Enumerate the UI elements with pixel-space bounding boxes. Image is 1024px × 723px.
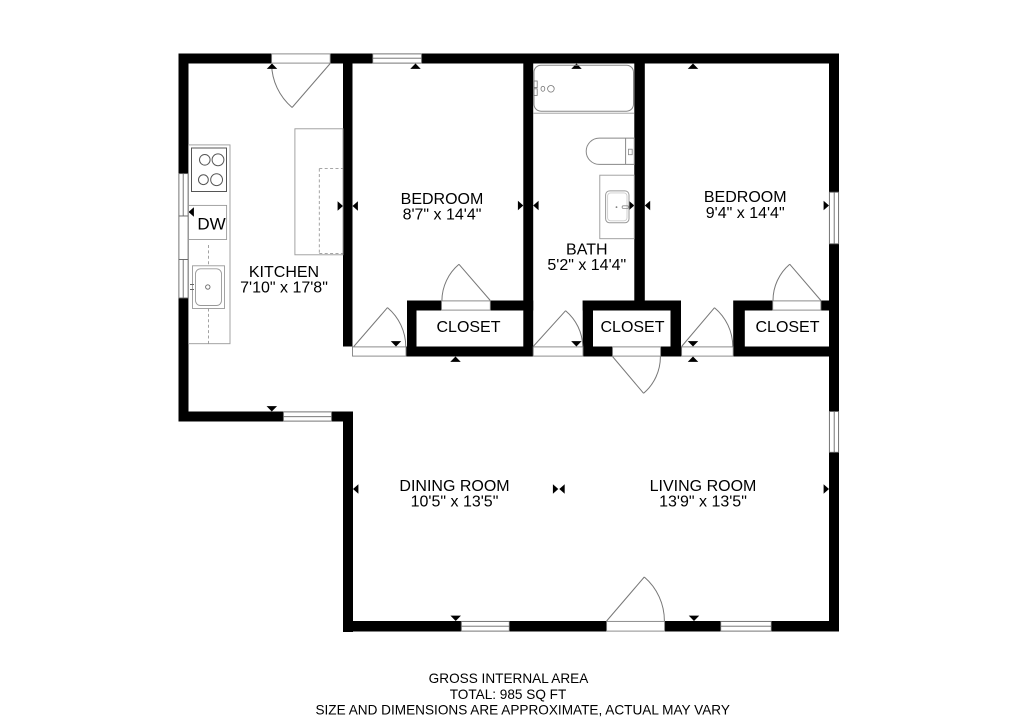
svg-text:KITCHEN: KITCHEN [249,264,319,281]
svg-text:DW: DW [197,215,225,234]
svg-text:SIZE AND DIMENSIONS ARE APPROX: SIZE AND DIMENSIONS ARE APPROXIMATE, ACT… [315,702,729,717]
svg-text:7'10" x 17'8": 7'10" x 17'8" [240,279,328,296]
svg-text:BATH: BATH [566,242,607,259]
svg-text:TOTAL: 985 SQ FT: TOTAL: 985 SQ FT [450,687,567,702]
svg-text:BEDROOM: BEDROOM [704,189,787,206]
svg-text:CLOSET: CLOSET [600,319,664,336]
svg-text:9'4" x 14'4": 9'4" x 14'4" [706,205,785,222]
svg-text:CLOSET: CLOSET [436,319,500,336]
svg-text:CLOSET: CLOSET [755,319,819,336]
svg-text:DINING ROOM: DINING ROOM [399,478,509,495]
svg-text:8'7" x 14'4": 8'7" x 14'4" [403,207,482,224]
svg-text:GROSS INTERNAL AREA: GROSS INTERNAL AREA [429,671,590,686]
svg-text:5'2" x 14'4": 5'2" x 14'4" [547,257,626,274]
svg-text:13'9" x 13'5": 13'9" x 13'5" [659,494,747,511]
svg-text:10'5" x 13'5": 10'5" x 13'5" [411,494,499,511]
svg-text:BEDROOM: BEDROOM [401,191,484,208]
svg-text:LIVING ROOM: LIVING ROOM [650,478,757,495]
